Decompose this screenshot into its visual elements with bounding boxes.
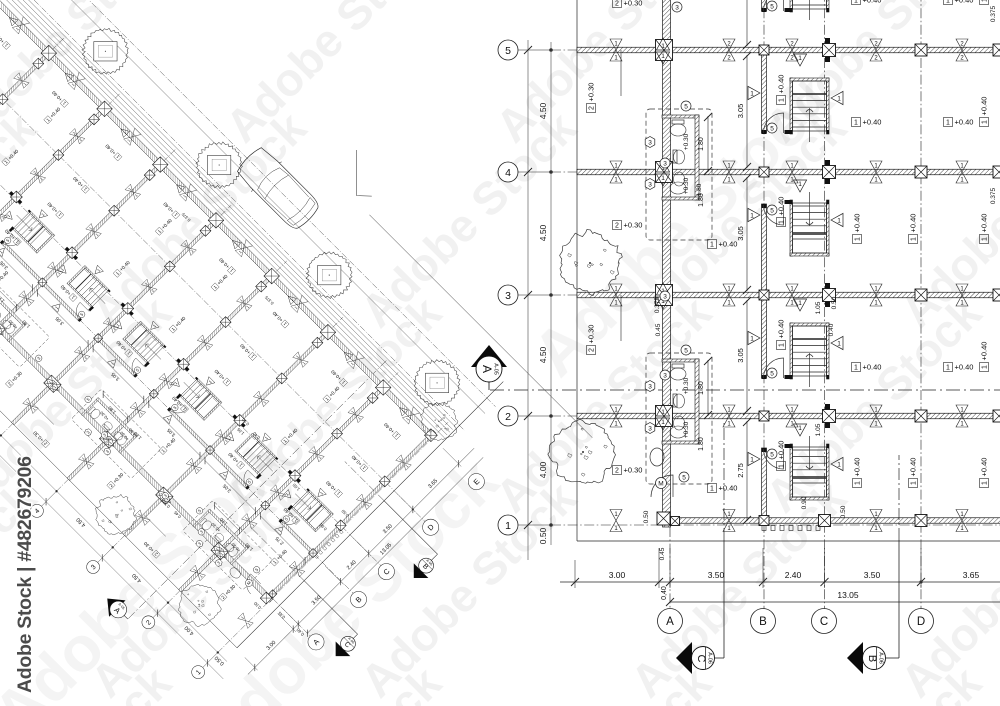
svg-text:2: 2 xyxy=(589,106,596,110)
svg-text:1: 1 xyxy=(779,343,786,347)
svg-text:2.40: 2.40 xyxy=(785,570,802,580)
svg-text:3.05: 3.05 xyxy=(736,348,745,363)
svg-text:+0.40: +0.40 xyxy=(777,75,786,94)
svg-text:1: 1 xyxy=(750,336,754,343)
svg-text:3: 3 xyxy=(648,139,652,146)
svg-text:+0.40: +0.40 xyxy=(980,97,989,116)
svg-text:1: 1 xyxy=(661,419,665,426)
svg-text:1: 1 xyxy=(710,242,714,249)
svg-text:2: 2 xyxy=(615,1,619,8)
svg-text:1: 1 xyxy=(798,181,802,188)
svg-text:1: 1 xyxy=(982,0,989,2)
svg-text:M: M xyxy=(658,480,663,487)
svg-text:3: 3 xyxy=(505,290,511,302)
svg-text:2.75: 2.75 xyxy=(736,463,745,478)
svg-text:+0.40: +0.40 xyxy=(955,363,974,372)
svg-text:1.80: 1.80 xyxy=(698,137,705,151)
svg-text:1: 1 xyxy=(779,98,786,102)
svg-text:+0.40: +0.40 xyxy=(909,458,918,477)
svg-text:1: 1 xyxy=(855,481,862,485)
svg-text:1.80: 1.80 xyxy=(698,381,705,395)
svg-text:1: 1 xyxy=(661,43,665,50)
svg-text:0.375: 0.375 xyxy=(990,187,997,204)
svg-text:0.50: 0.50 xyxy=(538,527,548,544)
svg-text:+0.30: +0.30 xyxy=(683,177,690,194)
svg-text:+0.30: +0.30 xyxy=(624,0,643,8)
svg-text:D: D xyxy=(917,616,925,628)
svg-text:3.05: 3.05 xyxy=(736,104,745,119)
svg-text:1: 1 xyxy=(982,365,989,369)
svg-text:5: 5 xyxy=(682,474,686,481)
svg-text:3.50: 3.50 xyxy=(864,570,881,580)
svg-text:1.80: 1.80 xyxy=(698,437,705,451)
svg-text:C: C xyxy=(695,655,707,663)
svg-text:1: 1 xyxy=(798,55,802,62)
svg-text:3.65: 3.65 xyxy=(963,570,980,580)
svg-text:1: 1 xyxy=(946,365,950,372)
svg-text:+0.30: +0.30 xyxy=(683,421,690,438)
svg-text:4.50: 4.50 xyxy=(538,224,548,241)
svg-text:1: 1 xyxy=(505,520,511,532)
svg-text:+0.30: +0.30 xyxy=(683,133,690,150)
svg-text:5: 5 xyxy=(684,347,688,354)
svg-text:2: 2 xyxy=(505,411,511,423)
svg-text:A-06: A-06 xyxy=(878,652,884,664)
svg-text:+0.40: +0.40 xyxy=(863,363,882,372)
svg-text:+0.40: +0.40 xyxy=(719,484,738,493)
svg-text:2: 2 xyxy=(615,468,619,475)
svg-text:0,40: 0,40 xyxy=(661,586,668,600)
svg-text:+0.30: +0.30 xyxy=(624,466,643,475)
svg-text:+0.40: +0.40 xyxy=(777,197,786,216)
svg-text:0.375: 0.375 xyxy=(654,296,661,313)
svg-text:A: A xyxy=(666,616,674,628)
svg-text:+0.30: +0.30 xyxy=(587,325,596,344)
svg-text:3: 3 xyxy=(663,293,667,300)
svg-text:1: 1 xyxy=(779,220,786,224)
svg-text:1: 1 xyxy=(854,120,858,127)
svg-text:5: 5 xyxy=(770,125,774,132)
svg-text:1: 1 xyxy=(946,0,950,5)
svg-text:1: 1 xyxy=(798,425,802,432)
svg-text:3.50: 3.50 xyxy=(708,570,725,580)
svg-text:5: 5 xyxy=(770,3,774,10)
svg-text:+0.40: +0.40 xyxy=(853,458,862,477)
svg-text:1: 1 xyxy=(750,213,754,220)
svg-text:A-05: A-05 xyxy=(493,363,499,375)
svg-text:+0.30: +0.30 xyxy=(683,377,690,394)
svg-text:1: 1 xyxy=(661,409,665,416)
svg-text:C: C xyxy=(820,616,828,628)
svg-text:+0.40: +0.40 xyxy=(980,458,989,477)
svg-text:4.50: 4.50 xyxy=(538,346,548,363)
svg-text:3: 3 xyxy=(648,383,652,390)
svg-text:4.00: 4.00 xyxy=(538,461,548,478)
svg-text:1: 1 xyxy=(661,175,665,182)
svg-text:1: 1 xyxy=(750,457,754,464)
svg-text:+0.40: +0.40 xyxy=(980,214,989,233)
svg-text:13.05: 13.05 xyxy=(837,590,859,600)
svg-text:1: 1 xyxy=(661,53,665,60)
svg-text:0.375: 0.375 xyxy=(990,5,997,22)
svg-text:4.50: 4.50 xyxy=(538,102,548,119)
svg-text:5: 5 xyxy=(505,45,511,57)
svg-text:+0.40: +0.40 xyxy=(909,214,918,233)
svg-text:2: 2 xyxy=(615,223,619,230)
svg-text:5: 5 xyxy=(770,207,774,214)
svg-text:1: 1 xyxy=(982,237,989,241)
svg-text:+0.40: +0.40 xyxy=(955,0,974,5)
svg-text:+0.40: +0.40 xyxy=(853,214,862,233)
svg-text:1: 1 xyxy=(837,96,841,103)
svg-text:A-06: A-06 xyxy=(707,652,713,664)
svg-text:1: 1 xyxy=(982,120,989,124)
svg-text:+0.40: +0.40 xyxy=(863,0,882,5)
svg-text:1: 1 xyxy=(837,218,841,225)
svg-text:1: 1 xyxy=(837,462,841,469)
svg-text:5: 5 xyxy=(770,370,774,377)
svg-text:3: 3 xyxy=(648,181,652,188)
svg-text:1: 1 xyxy=(779,464,786,468)
svg-text:1: 1 xyxy=(798,300,802,307)
svg-text:0.45: 0.45 xyxy=(655,323,662,336)
svg-text:1: 1 xyxy=(837,341,841,348)
svg-text:+0.40: +0.40 xyxy=(719,240,738,249)
svg-text:1.80: 1.80 xyxy=(696,183,703,196)
svg-text:0.50: 0.50 xyxy=(831,296,838,309)
svg-text:1: 1 xyxy=(982,481,989,485)
svg-text:0.90: 0.90 xyxy=(801,496,808,509)
svg-text:3: 3 xyxy=(648,425,652,432)
svg-text:+0.40: +0.40 xyxy=(863,118,882,127)
svg-text:1: 1 xyxy=(911,237,918,241)
svg-text:B: B xyxy=(759,616,767,628)
svg-text:+0.40: +0.40 xyxy=(980,342,989,361)
svg-text:0.50: 0.50 xyxy=(643,510,650,523)
svg-text:+0.40: +0.40 xyxy=(777,320,786,339)
svg-text:B: B xyxy=(866,655,878,662)
svg-text:1: 1 xyxy=(854,0,858,5)
svg-text:+0.30: +0.30 xyxy=(624,221,643,230)
svg-text:1: 1 xyxy=(855,237,862,241)
svg-text:2: 2 xyxy=(589,348,596,352)
svg-text:0.40: 0.40 xyxy=(828,323,835,336)
svg-text:1: 1 xyxy=(710,486,714,493)
svg-text:1.05: 1.05 xyxy=(815,301,822,314)
svg-text:3: 3 xyxy=(663,160,667,167)
svg-text:1.05: 1.05 xyxy=(815,423,822,436)
svg-text:3.00: 3.00 xyxy=(609,570,626,580)
svg-text:1: 1 xyxy=(750,91,754,98)
svg-text:Adobe Stock | #482679206: Adobe Stock | #482679206 xyxy=(14,456,36,693)
svg-text:3: 3 xyxy=(675,4,679,11)
svg-text:3: 3 xyxy=(663,372,667,379)
svg-text:1: 1 xyxy=(854,365,858,372)
svg-text:0.45: 0.45 xyxy=(659,547,666,560)
svg-text:+0.40: +0.40 xyxy=(777,441,786,460)
svg-text:4: 4 xyxy=(505,167,511,179)
svg-text:+0.40: +0.40 xyxy=(955,118,974,127)
svg-text:+0.30: +0.30 xyxy=(587,83,596,102)
svg-text:1: 1 xyxy=(911,481,918,485)
svg-text:A: A xyxy=(480,365,494,373)
svg-text:5: 5 xyxy=(770,451,774,458)
svg-text:5: 5 xyxy=(684,103,688,110)
svg-text:1: 1 xyxy=(946,120,950,127)
svg-text:0.50: 0.50 xyxy=(840,505,847,518)
